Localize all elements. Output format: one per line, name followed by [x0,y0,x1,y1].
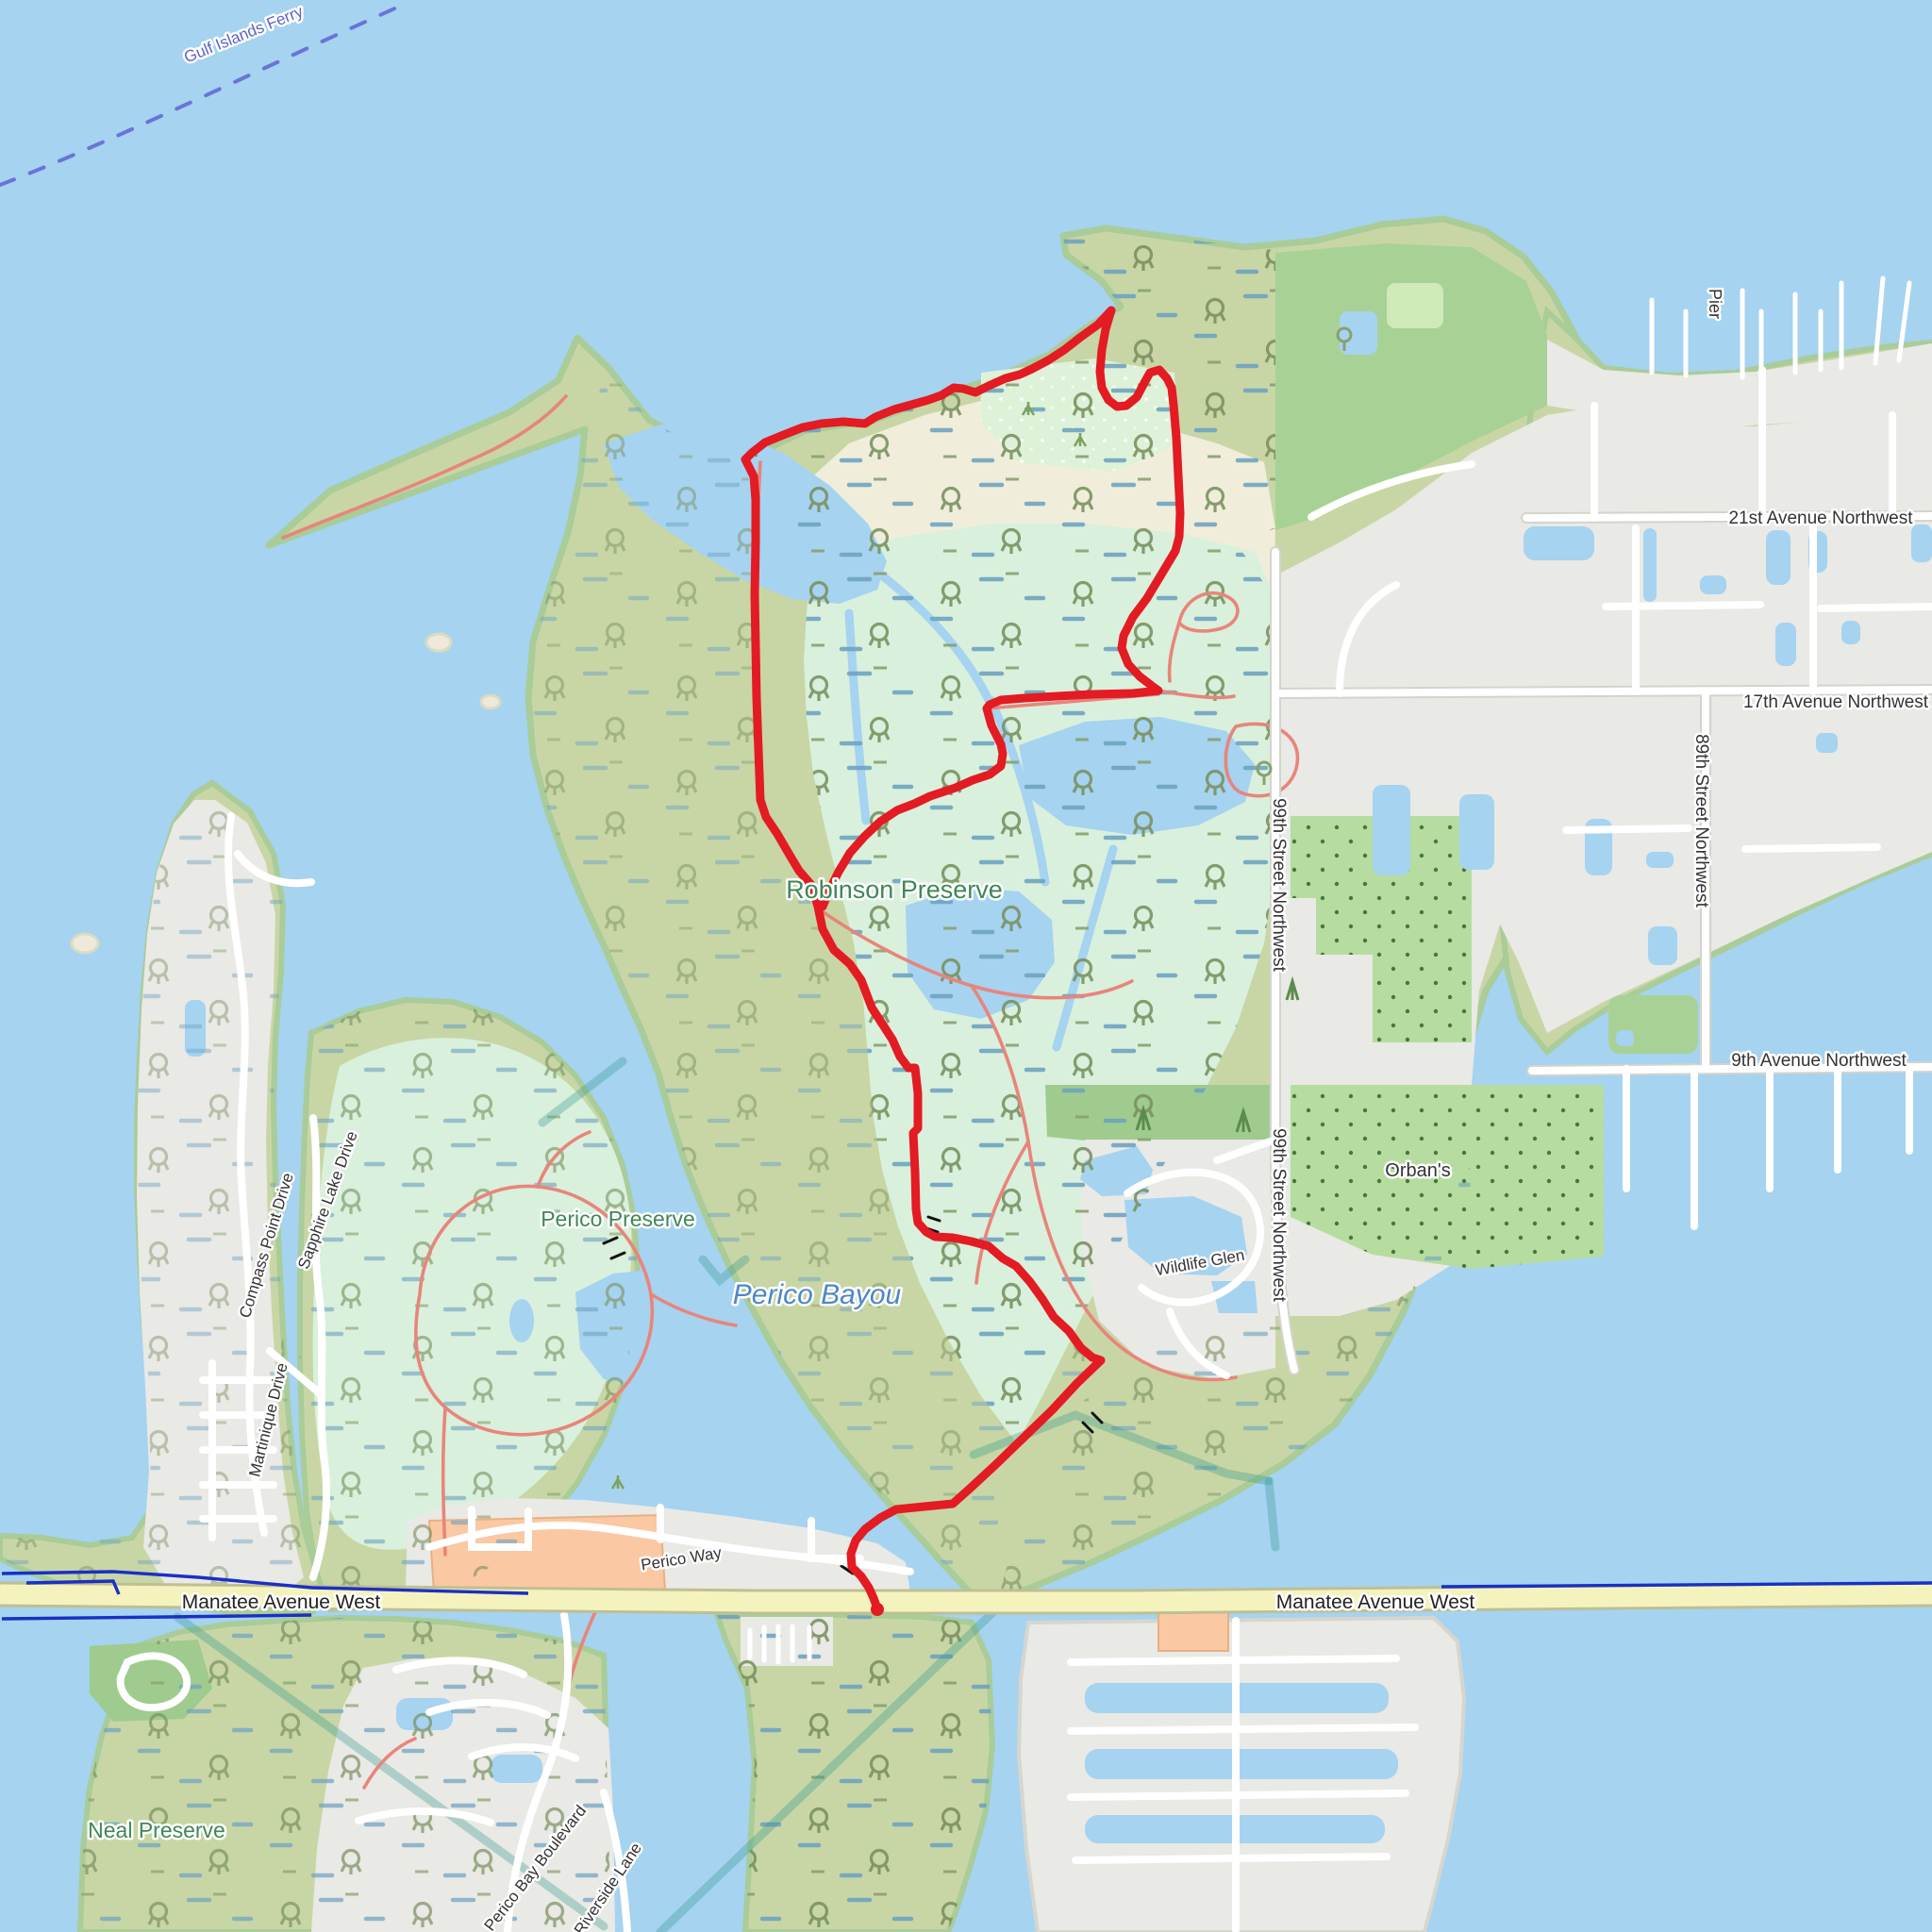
gps-route-endpoint [871,1603,884,1616]
label-orbans: Orban's [1385,1160,1450,1181]
label-89th-street: 89th Street Northwest [1691,734,1711,908]
label-pier: Pier [1706,289,1724,319]
map-canvas[interactable]: Gulf Islands Ferry Pier 21st Avenue Nort… [0,0,1932,1932]
label-17th-avenue: 17th Avenue Northwest [1743,692,1929,712]
label-perico-bayou: Perico Bayou [733,1279,902,1310]
label-21st-avenue: 21st Avenue Northwest [1728,508,1913,528]
label-manatee-avenue-west-left: Manatee Avenue West [182,1591,381,1613]
map-svg: Gulf Islands Ferry Pier 21st Avenue Nort… [0,0,1932,1932]
label-99th-street-lower: 99th Street Northwest [1269,1128,1289,1302]
label-9th-avenue: 9th Avenue Northwest [1731,1051,1907,1071]
label-neal-preserve: Neal Preserve [88,1818,225,1842]
label-99th-street-upper: 99th Street Northwest [1269,798,1289,972]
label-perico-preserve: Perico Preserve [541,1207,695,1231]
label-robinson-preserve: Robinson Preserve [786,875,1003,904]
label-manatee-avenue-west-right: Manatee Avenue West [1276,1591,1475,1613]
